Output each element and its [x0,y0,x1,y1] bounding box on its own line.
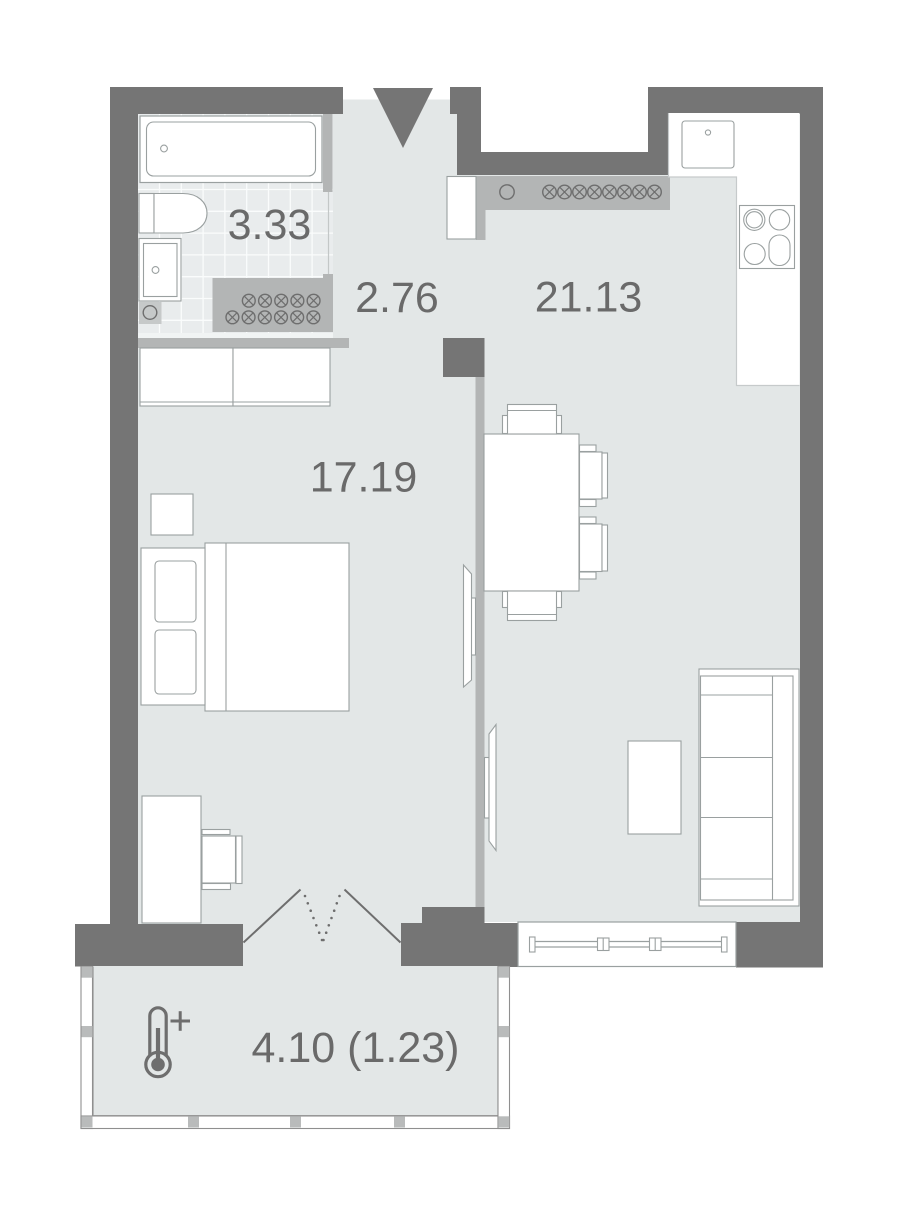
svg-text:3.33: 3.33 [228,201,312,249]
svg-text:17.19: 17.19 [310,453,418,501]
svg-text:21.13: 21.13 [535,274,643,322]
svg-text:4.10 (1.23): 4.10 (1.23) [252,1024,460,1072]
svg-text:2.76: 2.76 [355,274,439,322]
